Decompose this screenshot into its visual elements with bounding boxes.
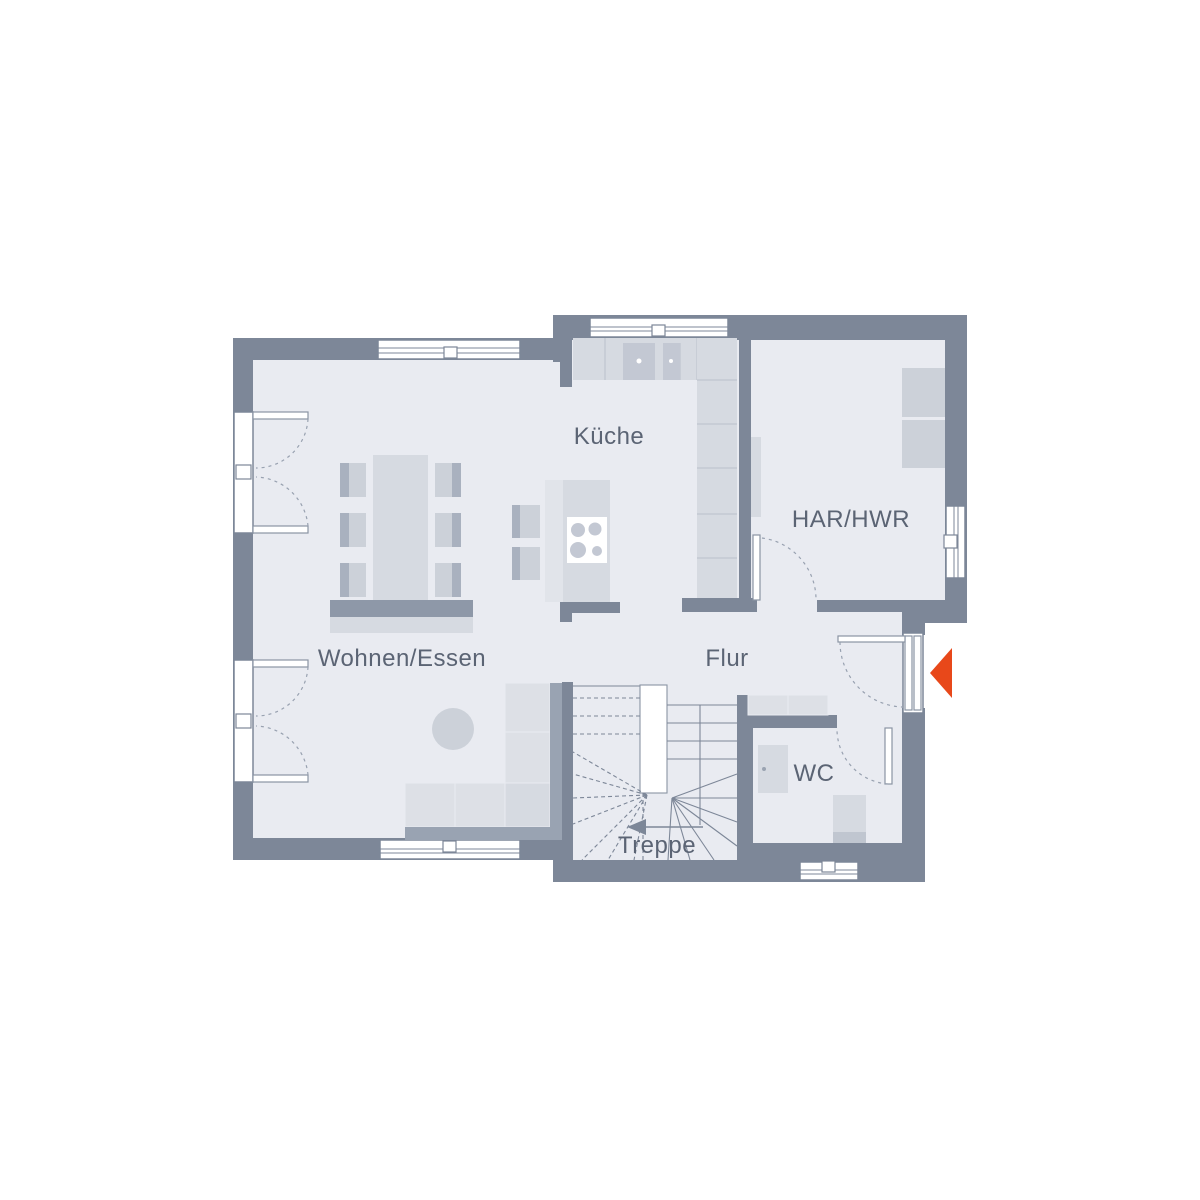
entrance-arrow-icon — [930, 648, 952, 698]
coffee-table — [432, 708, 474, 750]
room-label-flur: Flur — [705, 645, 748, 672]
chair — [340, 513, 366, 547]
chair — [435, 513, 461, 547]
chair — [340, 563, 366, 597]
window-top-living — [378, 340, 520, 359]
chair — [435, 463, 461, 497]
room-label-treppe: Treppe — [618, 832, 696, 859]
bar-stool — [512, 505, 540, 538]
window-bottom-living — [380, 840, 520, 859]
dining-table — [373, 455, 428, 600]
hall-sideboard — [748, 695, 828, 715]
room-label-kueche: Küche — [574, 423, 645, 450]
window-kitchen — [590, 318, 728, 337]
kitchen-cabinet-column — [697, 338, 737, 598]
room-label-wc: WC — [794, 760, 835, 787]
wc-sink — [758, 745, 788, 793]
chair — [340, 463, 366, 497]
kitchen-island — [545, 480, 610, 602]
room-label-wohnen-essen: Wohnen/Essen — [318, 645, 486, 672]
toilet — [833, 795, 866, 843]
window-har-hwr — [944, 506, 965, 578]
window-wc — [800, 861, 858, 880]
kitchen-sink — [623, 343, 680, 380]
floor-plan: Küche HAR/HWR Wohnen/Essen Flur WC Trepp… — [0, 0, 1200, 1200]
chair — [435, 563, 461, 597]
bar-stool — [512, 547, 540, 580]
room-label-har-hwr: HAR/HWR — [792, 506, 910, 533]
radiator — [751, 437, 761, 517]
dining-sideboard — [330, 600, 473, 633]
washer-dryer — [902, 368, 945, 468]
cooktop — [567, 517, 607, 563]
